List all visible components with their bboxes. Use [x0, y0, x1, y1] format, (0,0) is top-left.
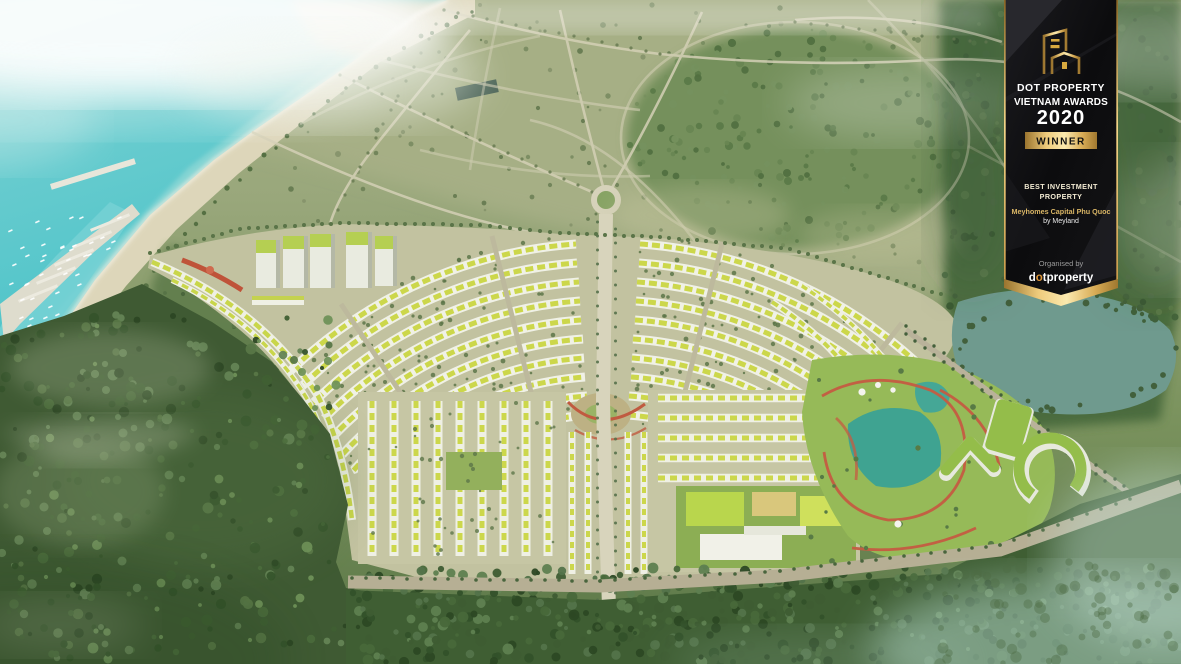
svg-text:by Meyland: by Meyland [1043, 218, 1079, 225]
svg-text:BEST INVESTMENT: BEST INVESTMENT [1024, 182, 1098, 191]
svg-text:2020: 2020 [1037, 107, 1086, 129]
svg-text:WINNER: WINNER [1036, 137, 1086, 148]
svg-text:Meyhomes Capital Phu Quoc: Meyhomes Capital Phu Quoc [1011, 207, 1110, 216]
svg-text:Organised by: Organised by [1039, 259, 1084, 268]
svg-text:PROPERTY: PROPERTY [1040, 192, 1083, 201]
svg-text:dotproperty: dotproperty [1029, 272, 1094, 284]
svg-text:DOT PROPERTY: DOT PROPERTY [1017, 83, 1105, 94]
